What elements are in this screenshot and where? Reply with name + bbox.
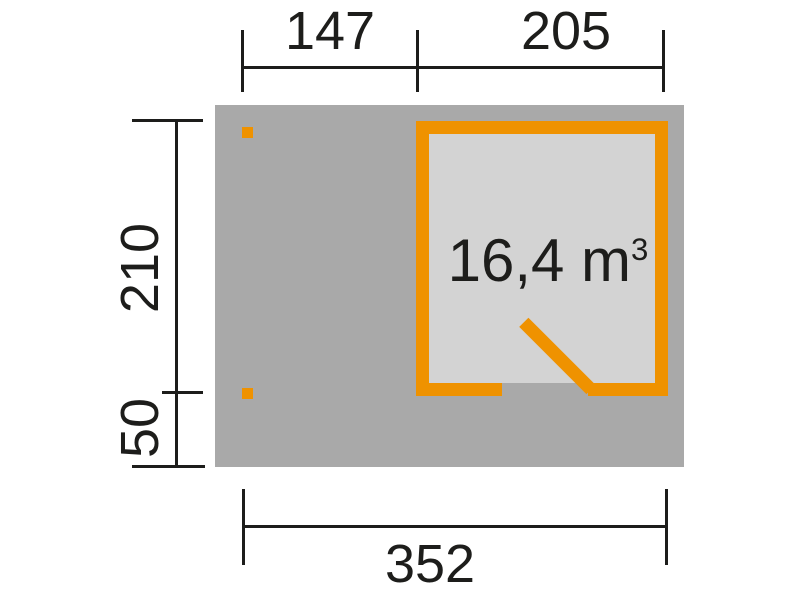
dim-bottom-tick-left	[242, 489, 245, 565]
wall-left	[416, 121, 429, 396]
dim-left-tick-middle	[162, 391, 203, 394]
dim-label-side-upper: 210	[113, 208, 167, 328]
volume-value: 16,4 m	[448, 227, 631, 294]
volume-label: 16,4 m3	[430, 231, 666, 291]
wall-bottom-right	[588, 383, 668, 396]
wall-bottom-left	[416, 383, 502, 396]
wall-top	[416, 121, 668, 134]
dim-label-top-left: 147	[242, 4, 418, 58]
dim-bottom-tick-right	[665, 489, 668, 565]
dim-left-tick-top	[132, 119, 203, 122]
volume-exponent: 3	[631, 232, 648, 267]
dim-label-top-right: 205	[466, 4, 666, 58]
post-marker-top	[242, 127, 253, 138]
dim-left-line	[175, 120, 178, 467]
dim-bottom-line	[243, 525, 667, 528]
dim-label-bottom: 352	[330, 537, 530, 591]
post-marker-bottom	[242, 388, 253, 399]
dim-top-line	[242, 66, 665, 69]
floorplan-canvas: 16,4 m3 147 205 210 50 352	[0, 0, 800, 600]
dim-label-side-lower: 50	[113, 368, 167, 488]
